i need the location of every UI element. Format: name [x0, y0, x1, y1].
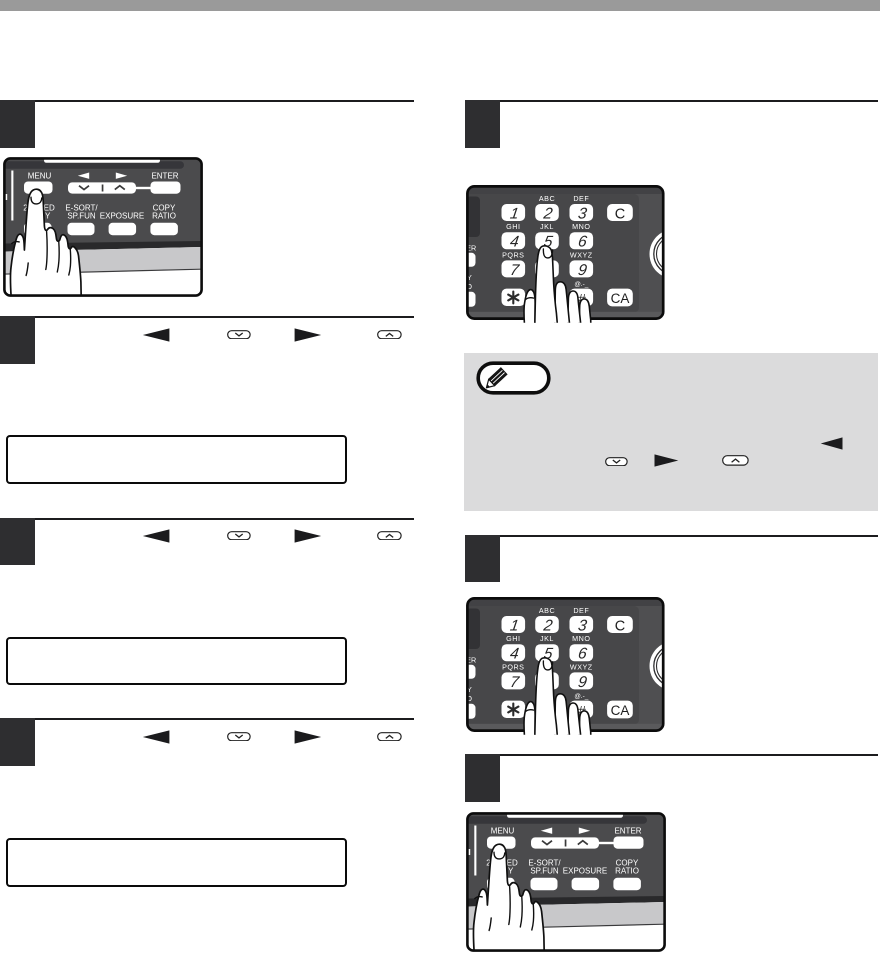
svg-text:C: C — [614, 206, 624, 222]
svg-text:MNO: MNO — [572, 222, 590, 231]
svg-text:ENTER: ENTER — [151, 172, 178, 181]
svg-text:RATIO: RATIO — [152, 212, 176, 221]
svg-text:WXYZ: WXYZ — [569, 662, 592, 671]
svg-text:EXPOSURE: EXPOSURE — [562, 866, 606, 875]
svg-text:DEF: DEF — [573, 606, 589, 615]
svg-text:SP.FUN: SP.FUN — [67, 212, 96, 221]
svg-text:MENU: MENU — [490, 826, 514, 835]
svg-text:GHI: GHI — [506, 222, 520, 231]
svg-text:ENTER: ENTER — [614, 826, 641, 835]
svg-text:MENU: MENU — [27, 172, 51, 181]
svg-text:C: C — [614, 618, 624, 634]
svg-text:@.-_: @.-_ — [574, 692, 588, 699]
svg-text:RATIO: RATIO — [615, 866, 639, 875]
svg-text:WXYZ: WXYZ — [569, 250, 592, 259]
svg-text:GHI: GHI — [506, 634, 520, 643]
svg-text:CA: CA — [610, 703, 629, 718]
svg-text:JKL: JKL — [540, 222, 554, 231]
svg-text:SP.FUN: SP.FUN — [530, 866, 559, 875]
svg-text:ABC: ABC — [538, 606, 554, 615]
svg-text:@.-_: @.-_ — [574, 280, 588, 287]
svg-text:JKL: JKL — [540, 634, 554, 643]
svg-text:PQRS: PQRS — [502, 250, 524, 259]
svg-text:EXPOSURE: EXPOSURE — [99, 212, 143, 221]
svg-text:MNO: MNO — [572, 634, 590, 643]
svg-text:CA: CA — [610, 291, 629, 306]
svg-text:PQRS: PQRS — [502, 662, 524, 671]
svg-text:DEF: DEF — [573, 194, 589, 203]
svg-text:ABC: ABC — [538, 194, 554, 203]
